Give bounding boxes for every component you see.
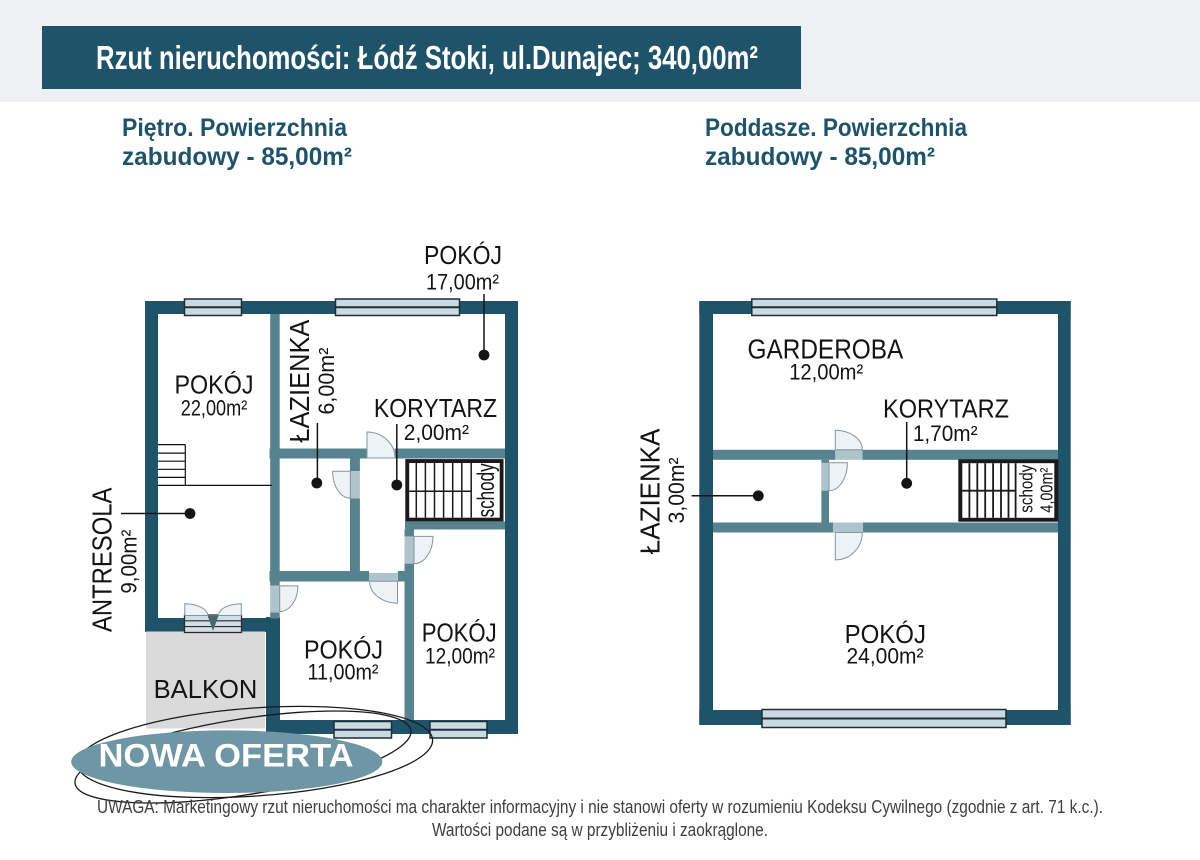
svg-text:KORYTARZ: KORYTARZ [883,393,1009,423]
svg-text:UWAGA: Marketingowy rzut nieru: UWAGA: Marketingowy rzut nieruchomości m… [97,797,1103,817]
svg-text:24,00m²: 24,00m² [847,644,924,669]
svg-text:Piętro. Powierzchnia: Piętro. Powierzchnia [122,114,348,142]
svg-text:KORYTARZ: KORYTARZ [374,393,497,423]
svg-text:9,00m²: 9,00m² [116,530,141,594]
svg-text:3,00m²: 3,00m² [664,457,689,523]
svg-text:11,00m²: 11,00m² [308,660,379,685]
svg-text:schody: schody [1016,465,1036,513]
svg-text:ŁAZIENKA: ŁAZIENKA [635,428,666,554]
svg-text:12,00m²: 12,00m² [425,644,495,669]
svg-text:Wartości podane są w przybliże: Wartości podane są w przybliżeniu i zaok… [432,820,768,840]
svg-text:6,00m²: 6,00m² [314,348,339,415]
svg-text:1,70m²: 1,70m² [913,421,978,446]
svg-text:12,00m²: 12,00m² [789,360,863,385]
svg-text:22,00m²: 22,00m² [181,396,248,421]
svg-text:2,00m²: 2,00m² [404,420,469,445]
svg-text:4,00m²: 4,00m² [1037,468,1057,513]
svg-text:ŁAZIENKA: ŁAZIENKA [284,319,315,442]
svg-text:ANTRESOLA: ANTRESOLA [87,487,118,632]
svg-text:POKÓJ: POKÓJ [424,240,502,270]
svg-text:BALKON: BALKON [154,674,258,704]
svg-text:17,00m²: 17,00m² [426,270,499,295]
svg-text:zabudowy - 85,00m²: zabudowy - 85,00m² [122,143,352,171]
svg-text:Poddasze. Powierzchnia: Poddasze. Powierzchnia [705,114,968,142]
svg-text:NOWA OFERTA: NOWA OFERTA [99,738,354,774]
svg-text:schody: schody [473,463,500,517]
svg-text:zabudowy - 85,00m²: zabudowy - 85,00m² [705,143,935,171]
svg-text:Rzut nieruchomości: Łódź Stoki: Rzut nieruchomości: Łódź Stoki, ul.Dunaj… [96,39,758,76]
